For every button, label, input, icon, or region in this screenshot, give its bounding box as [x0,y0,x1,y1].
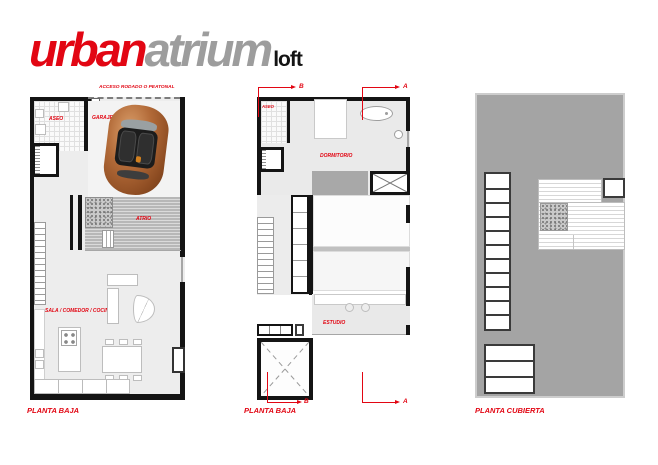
aseo-label: ASEO [49,116,63,122]
wardrobe [370,171,410,195]
dining-table [102,346,142,373]
wall [78,195,82,250]
section-label-b-bottom: B [304,398,309,405]
arrowhead-icon [297,400,302,404]
section-line-b-top [258,87,259,117]
roof-hatch [603,178,625,198]
dormitorio-label: DORMITORIO [320,153,352,159]
sink-appliance [35,360,44,369]
wall [406,325,410,335]
double-height-void [313,251,410,291]
garage-opening-edge [88,97,180,99]
cooktop [61,330,77,346]
ground-floor-plan: ASEO GARAJE ATRIO [30,97,185,400]
wall [180,97,185,257]
roof-plan-title: PLANTA CUBIERTA [475,406,545,415]
sink-appliance [35,349,44,358]
section-label-b-top: B [299,83,304,90]
elevator [32,143,59,177]
window-glazing [407,131,409,147]
chair [105,339,114,345]
arrowhead-icon [291,85,296,89]
bathtub [360,106,393,121]
elevator-door-hatch [35,146,40,174]
car-cockpit [114,127,158,169]
desk-chair [361,303,370,312]
staircase [257,217,274,294]
section-arrow-a-top [362,87,395,88]
kitchen-cabinets [34,379,130,394]
ground-plan-title: PLANTA BAJA [27,406,79,415]
toilet [58,102,69,112]
desk-chair [345,303,354,312]
wall [406,294,410,306]
chair [119,339,128,345]
elevator-door-hatch [262,150,266,169]
estudio-label: ESTUDIO [323,320,345,326]
car-top-view [101,102,172,199]
window-glazing [181,257,183,282]
arrowhead-icon [395,400,400,404]
floor-edge [312,334,410,335]
sofa [107,274,138,286]
roof-cell-wide [484,376,535,394]
section-label-a-top: A [403,83,408,90]
drawing-sheet: urbanatriumloft ACCESO RODADO O PEATONAL… [0,0,658,465]
wall [406,205,410,223]
section-line-a-top [362,87,363,120]
skylight-cross [261,342,309,396]
roof-cell [484,314,511,331]
study-desk [314,294,406,305]
arrowhead-icon [395,85,400,89]
lounge-chair [133,295,155,323]
side-door [172,347,185,373]
chair [133,339,142,345]
section-line-b-bottom [267,372,268,403]
sofa [107,288,119,324]
sala-label: SALA / COMEDOR / COCINA [45,308,113,314]
section-arrow-b-top [258,87,291,88]
bed [314,99,347,139]
wall [287,101,290,143]
wall [406,267,410,295]
section-label-a-bottom: A [403,398,408,405]
atrium-steps [102,230,114,248]
car-seat [117,130,136,163]
section-arrow-b-bottom [267,402,297,403]
upper-floor-plan: ASEO DORMITORIO ESTUDIO [257,97,410,400]
garage-skylight [257,338,313,400]
roof-plan [475,93,625,398]
logo: urbanatriumloft [29,26,302,73]
atrium-planting [85,197,113,228]
upper-plan-title: PLANTA BAJA [244,406,296,415]
aseo-label: ASEO [262,104,274,109]
atrium-skylight [538,179,602,203]
closet-row [257,324,293,336]
logo-loft: loft [273,48,302,71]
section-arrow-a-bottom [362,402,395,403]
elevator [259,147,284,172]
round-sink [394,130,403,139]
shelving-unit [291,195,309,294]
wall [30,394,185,400]
wall [406,97,410,131]
bathtub-drain [385,112,388,115]
closet-cell [295,324,304,336]
access-label: ACCESO RODADO O PEATONAL [99,85,175,90]
chair [133,375,142,381]
wall [70,195,73,250]
staircase [34,222,46,305]
section-line-a-bottom [362,372,363,403]
wall [180,282,185,347]
skylight-divider [573,235,574,249]
bridge-walkway [312,171,368,195]
logo-atrium: atrium [145,23,271,76]
atrio-label: ATRIO [136,216,151,222]
washbasin [35,124,46,135]
roof-planting [540,203,568,231]
logo-urban: urban [29,23,145,76]
wardrobe-cross [373,174,407,192]
washbasin [35,109,44,118]
atrium-void [313,195,410,247]
deck-edge [85,250,181,251]
